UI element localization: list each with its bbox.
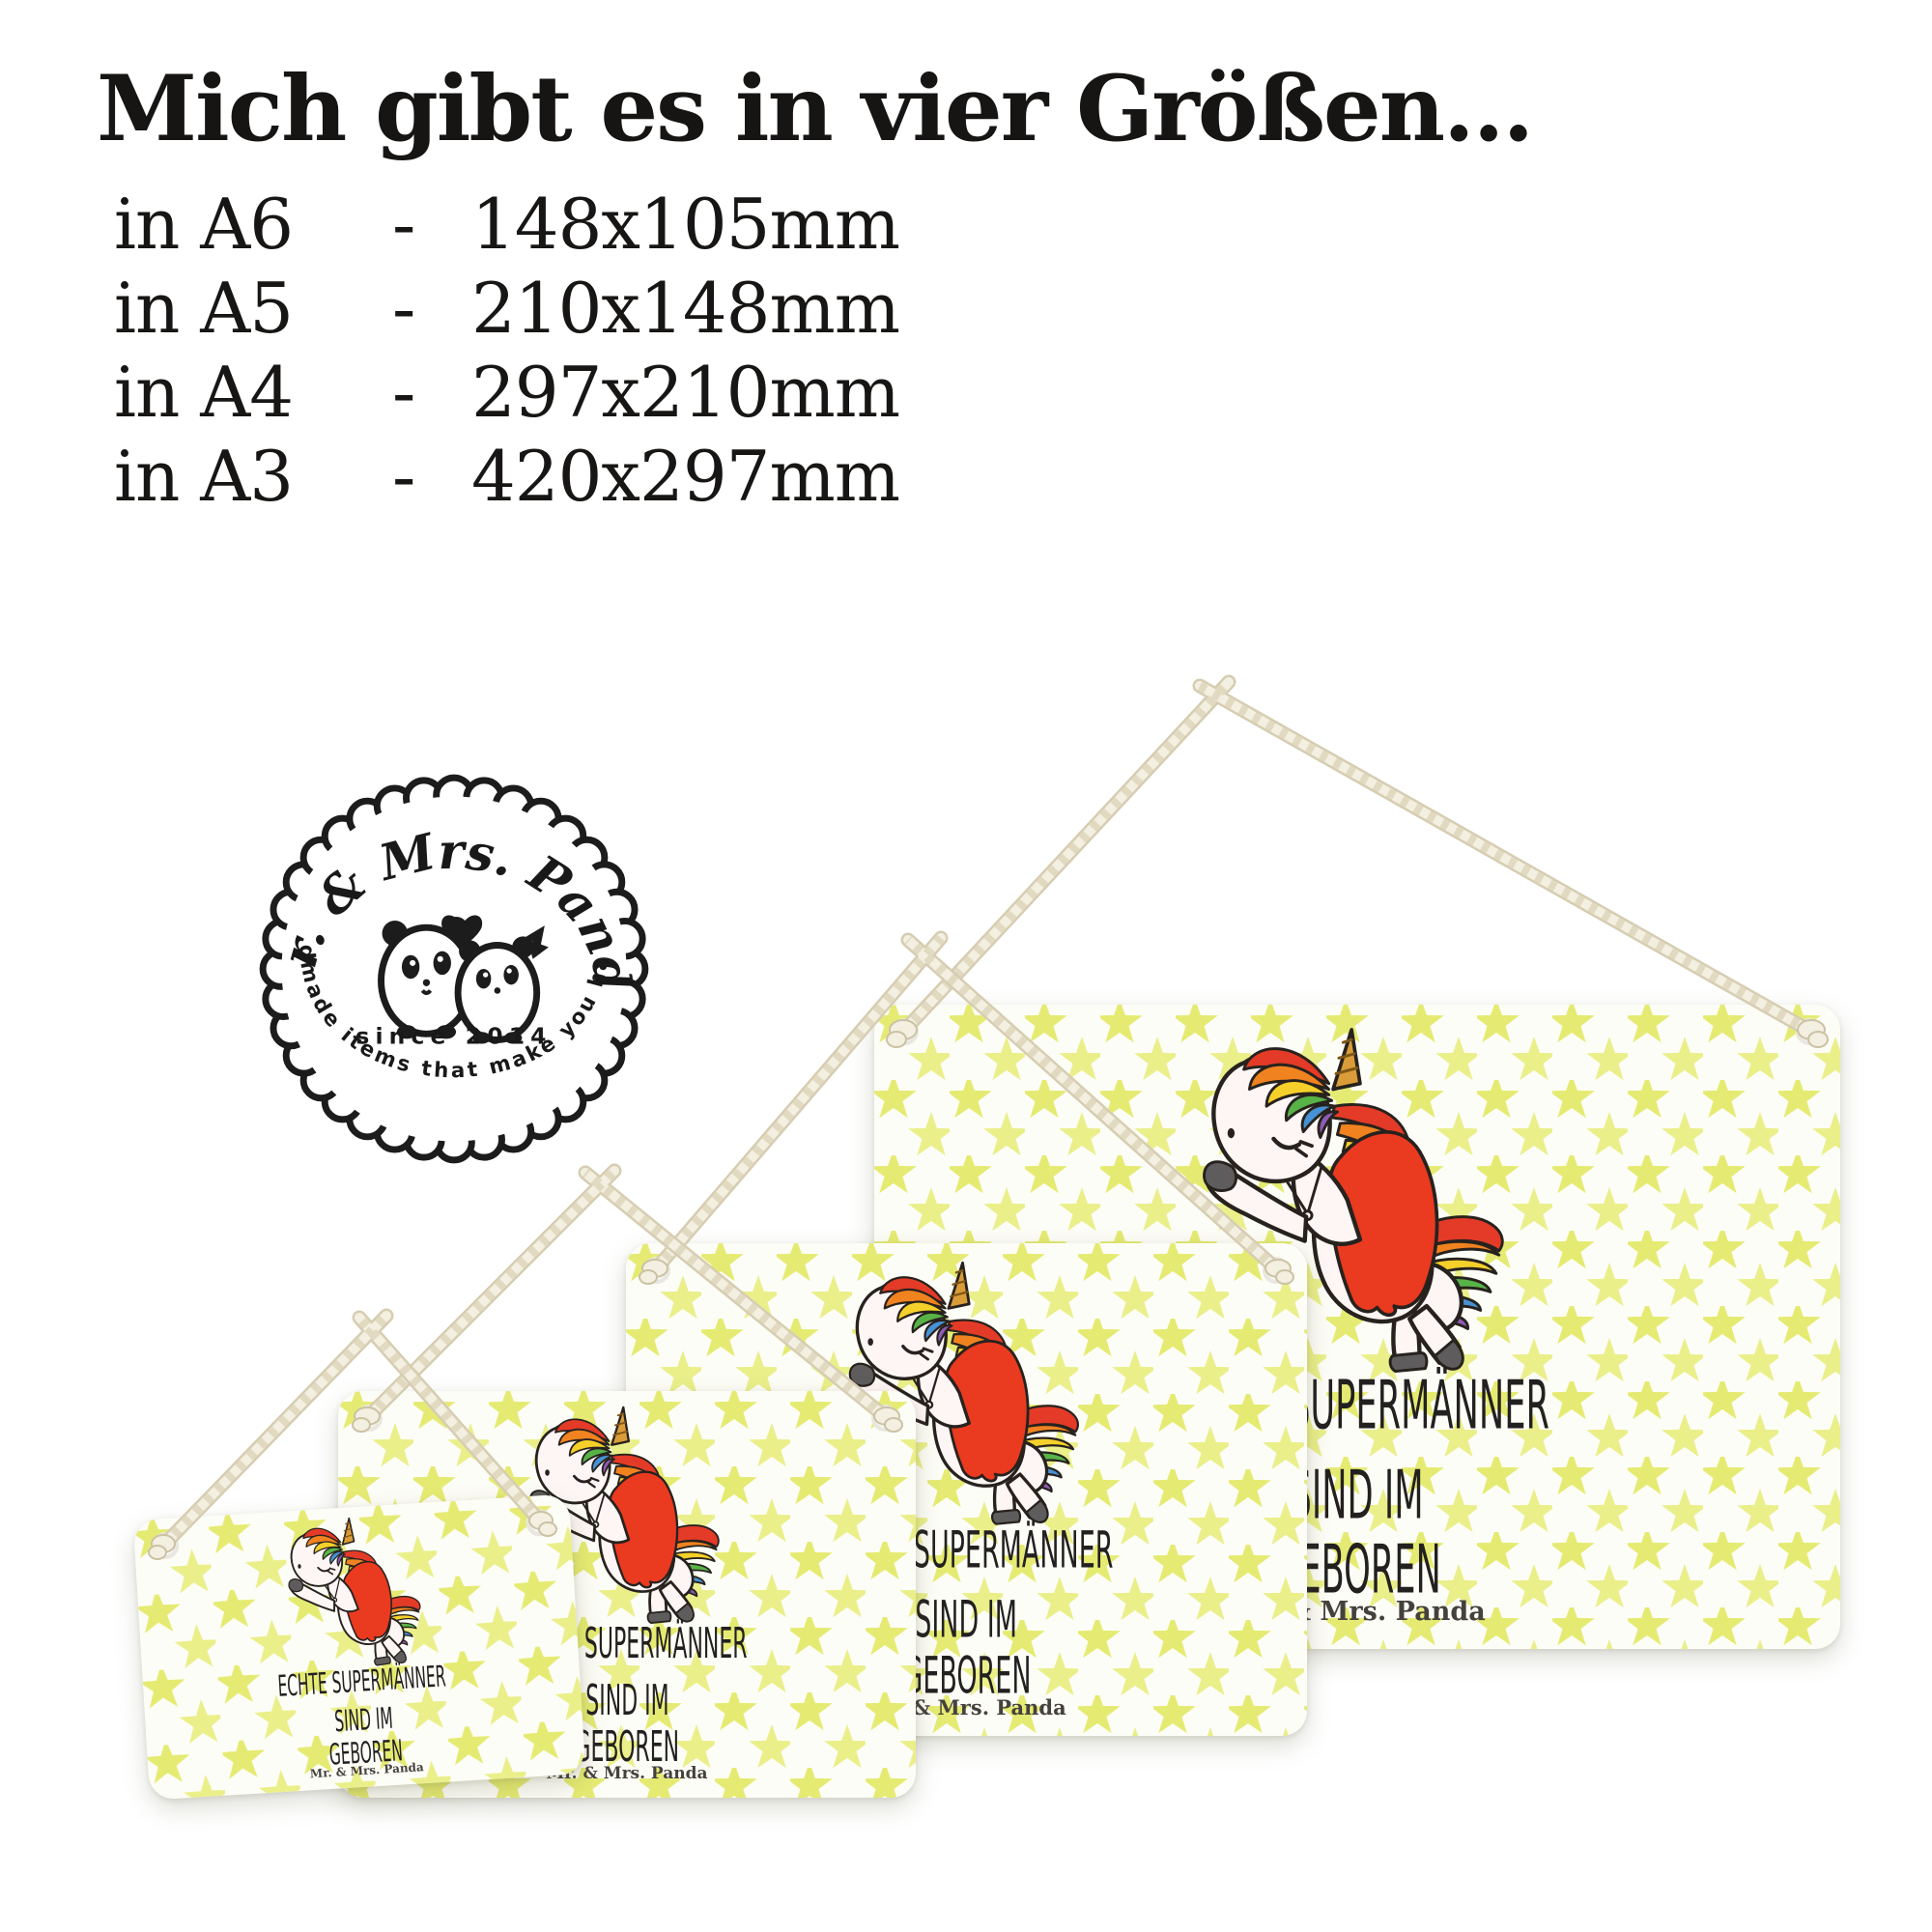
grommet-hole-icon [871,1405,898,1432]
grommet-hole-icon [643,1257,670,1284]
product-size-guide-image: Mich gibt es in vier Größen... in A6 - 1… [0,0,1932,1932]
size-value: 420x297mm [471,436,899,517]
size-value: 210x148mm [471,268,899,349]
size-list: in A6 - 148x105mm in A5 - 210x148mm in A… [114,184,899,520]
size-separator: - [392,436,471,517]
size-label: in A3 [114,436,392,517]
hanging-sign-a6: ECHTE SUPERMÄNNER SIND IM GEBOREN Mr. & … [133,1493,586,1800]
grommet-hole-icon [355,1405,383,1432]
page-title: Mich gibt es in vier Größen... [97,56,1532,162]
unicorn-superman-icon [284,1513,429,1675]
size-separator: - [392,184,471,265]
size-row-a6: in A6 - 148x105mm [114,184,899,268]
grommet-hole-icon [1263,1257,1290,1284]
size-row-a3: in A3 - 420x297mm [114,436,899,520]
size-separator: - [392,352,471,433]
size-value: 148x105mm [471,184,899,265]
size-row-a5: in A5 - 210x148mm [114,268,899,352]
grommet-hole-icon [892,1018,919,1045]
size-row-a4: in A4 - 297x210mm [114,352,899,436]
grommet-hole-icon [1796,1018,1823,1045]
size-label: in A6 [114,184,392,265]
size-label: in A5 [114,268,392,349]
size-label: in A4 [114,352,392,433]
size-value: 297x210mm [471,352,899,433]
size-separator: - [392,268,471,349]
brand-logo-badge: Mr. & Mrs. Panda since 2014 Handmade ite… [257,772,651,1166]
